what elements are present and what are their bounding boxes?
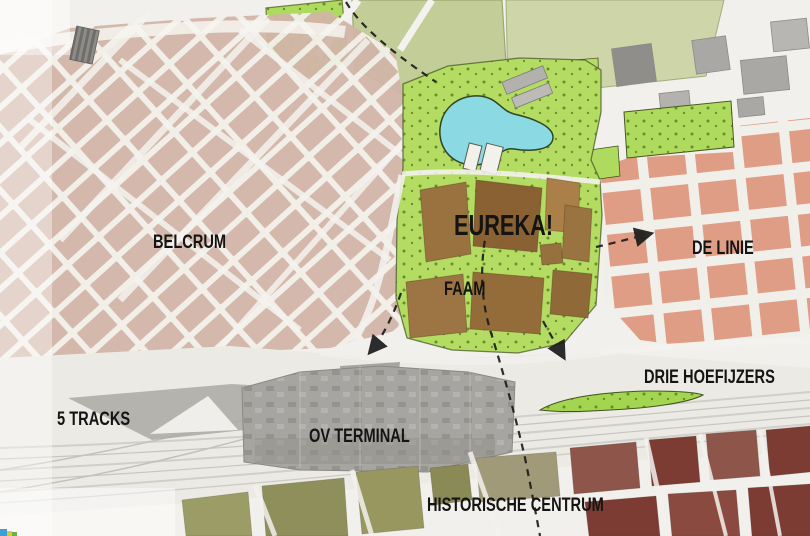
label-belcrum: BELCRUM [153,233,226,253]
southwest-veil [0,488,175,536]
map-artwork [0,0,810,536]
label-ov-terminal: OV TERMINAL [309,427,410,447]
west-veil [0,0,52,536]
northwest-veil [0,0,70,55]
map-canvas: BELCRUM EUREKA! FAAM DE LINIE DRIE HOEFI… [0,0,810,536]
label-de-linie: DE LINIE [692,239,754,259]
label-drie-hoefijzers: DRIE HOEFIJZERS [644,368,775,388]
label-5-tracks: 5 TRACKS [57,410,130,430]
label-eureka: EUREKA! [454,212,553,241]
ov-terminal-building [242,362,515,472]
label-faam: FAAM [444,280,485,300]
belcrum-district [0,12,412,385]
label-historische-centrum: HISTORISCHE CENTRUM [427,496,604,516]
